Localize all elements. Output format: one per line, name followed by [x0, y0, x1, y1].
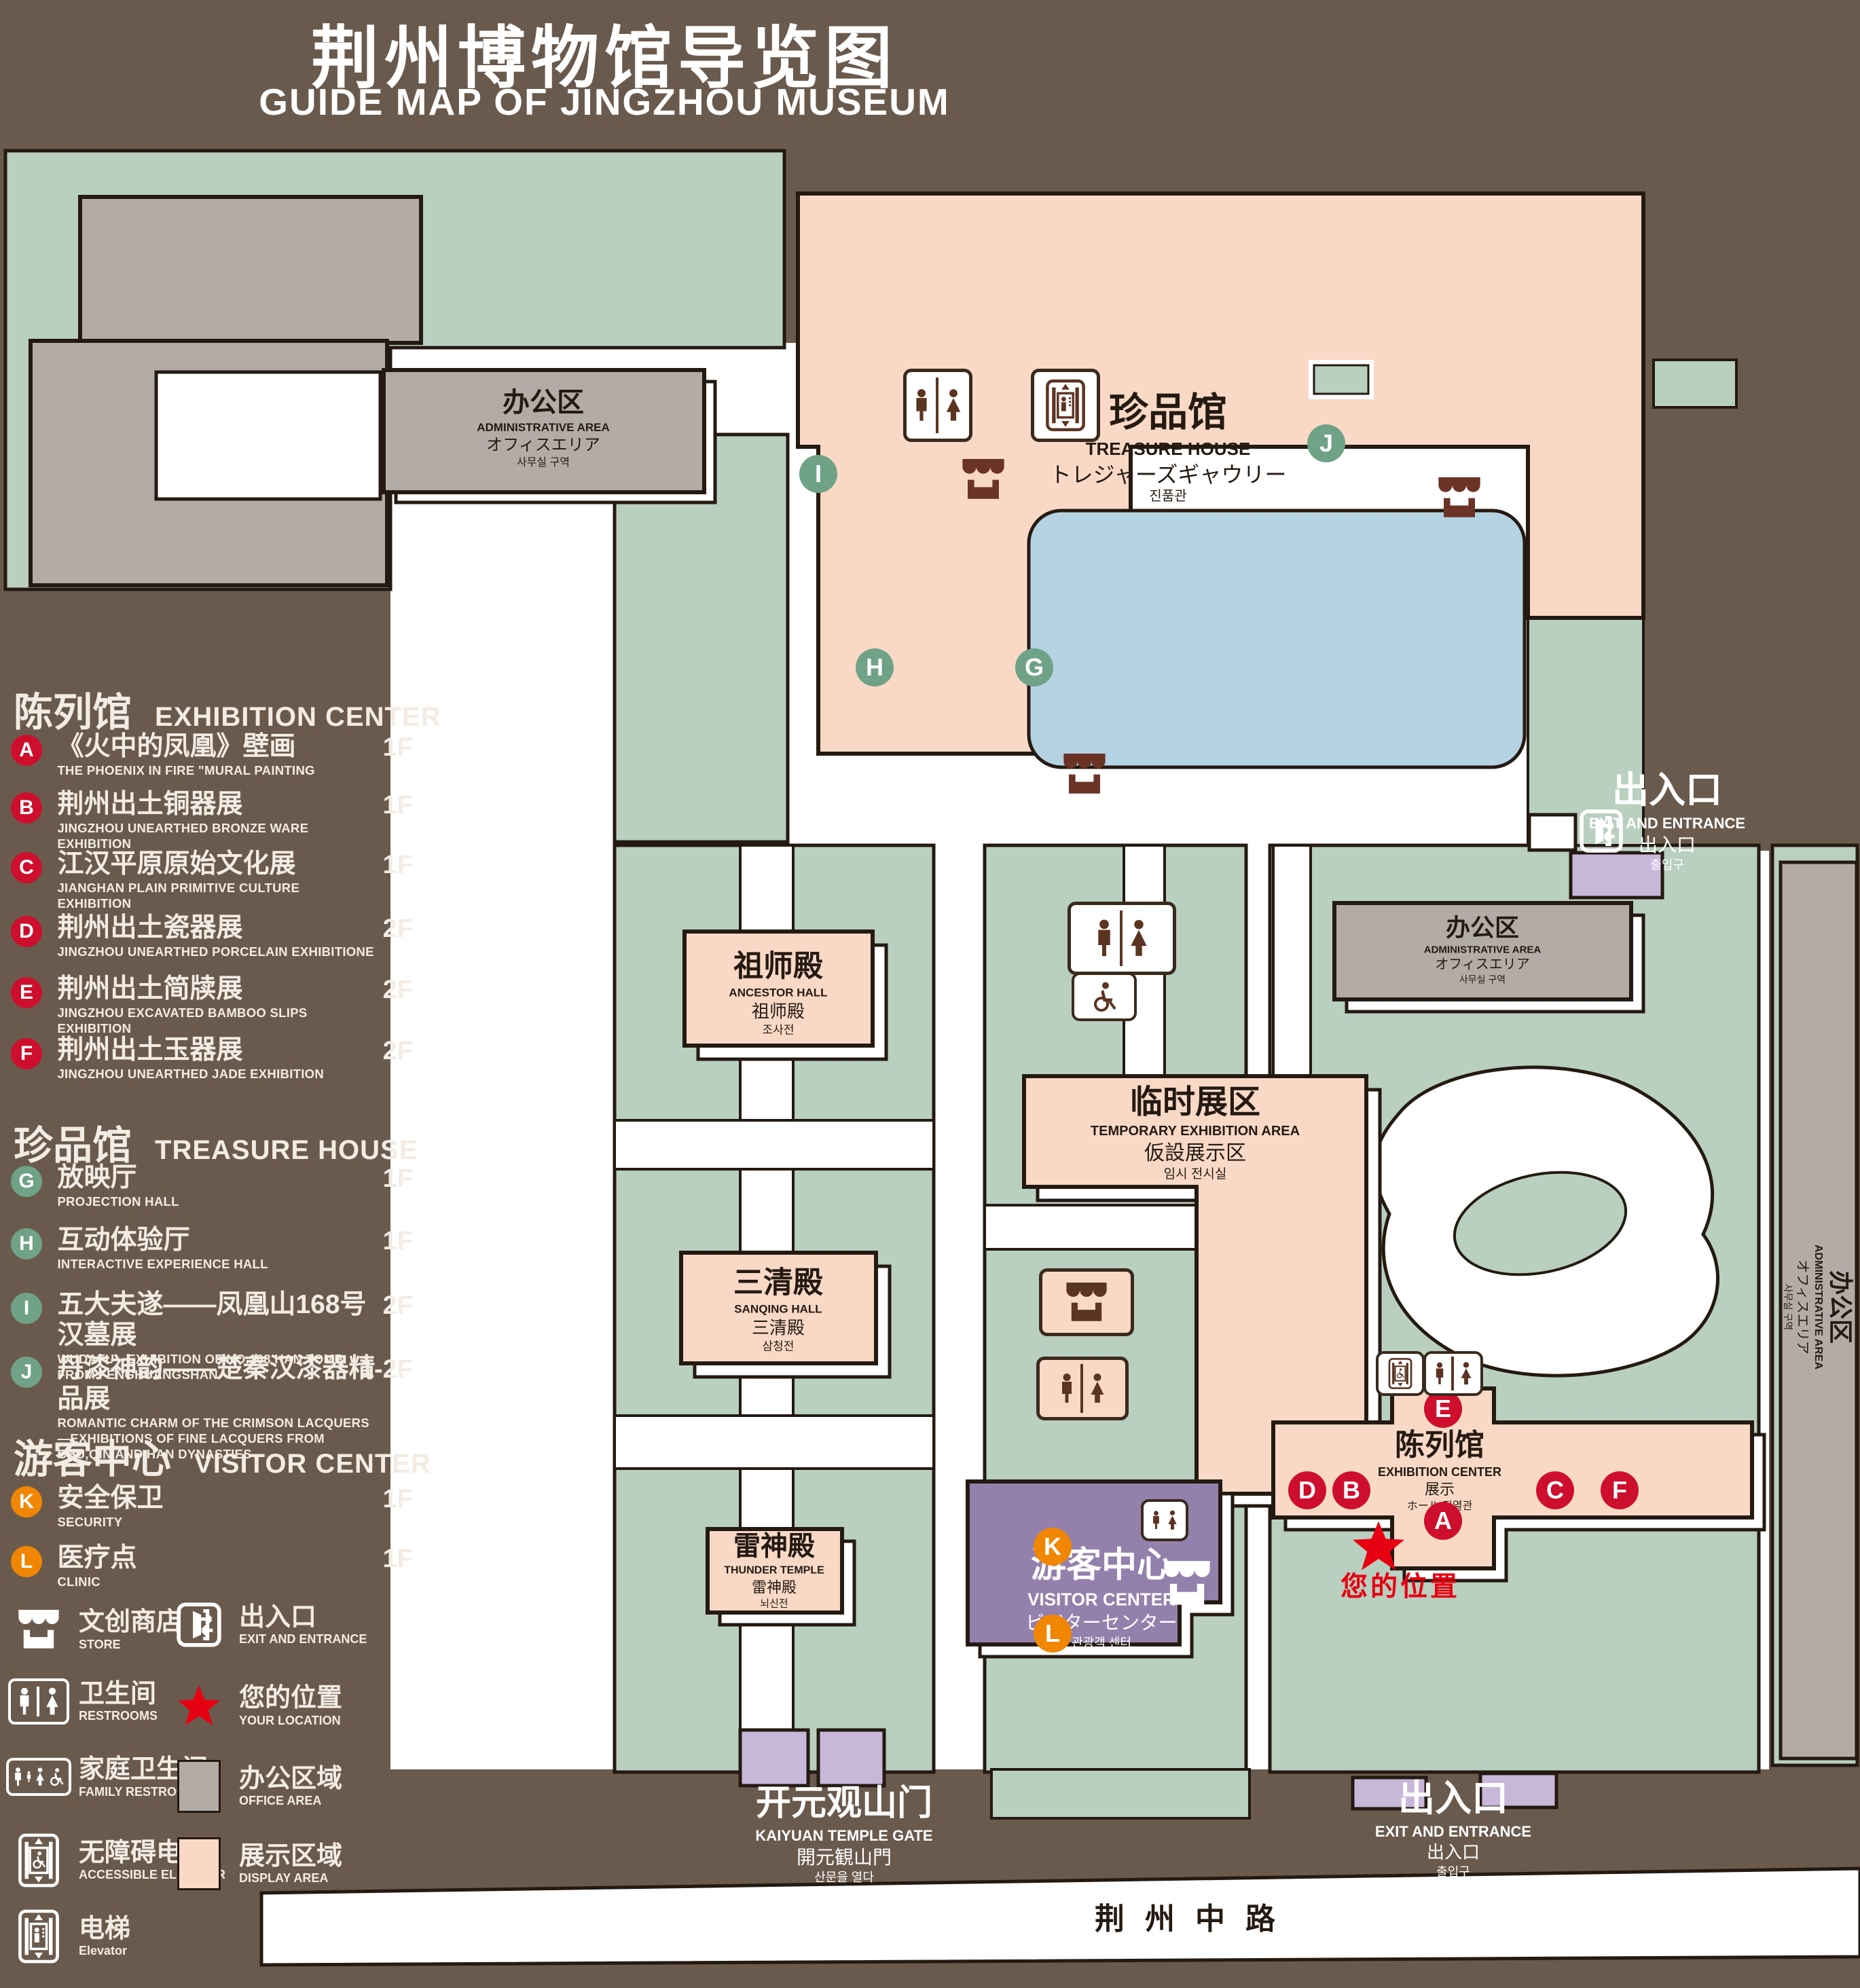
- map-marker-A: A: [1424, 1502, 1462, 1540]
- legend-symbol-office-area: 办公区域 OFFICE AREA: [170, 1760, 342, 1813]
- label-admin-nw: 办公区 ADMINISTRATIVE AREA オフィスエリア 사무실 구역: [477, 386, 610, 470]
- map-marker-C: C: [1536, 1471, 1574, 1509]
- legend-section-exhibition-center: 陈列馆 EXHIBITION CENTER: [14, 680, 441, 737]
- green-south-ext: [991, 1769, 1250, 1818]
- legend-item-D: D 荆州出土瓷器展 JINGZHOU UNEARTHED PORCELAIN E…: [11, 913, 432, 959]
- visitor-restroom-icon: [1141, 1499, 1188, 1541]
- map-marker-I: I: [799, 455, 837, 493]
- road-label: 荆州中路: [1095, 1894, 1296, 1938]
- your-location-label: 您的位置: [1341, 1564, 1460, 1604]
- treasure-restroom-icon: [903, 369, 972, 442]
- treasure-skylight: [1314, 365, 1368, 394]
- map-marker-J: J: [1307, 424, 1345, 462]
- exhibition-elevator-icon: [1376, 1351, 1425, 1396]
- badge-A: A: [11, 735, 42, 766]
- map-marker-F: F: [1601, 1471, 1639, 1509]
- legend-symbol-store: 文创商店 STORE: [10, 1608, 182, 1652]
- badge-D: D: [11, 916, 42, 947]
- map-marker-G: G: [1015, 648, 1053, 686]
- map-marker-B: B: [1332, 1471, 1370, 1509]
- store-icon: [10, 1610, 68, 1649]
- treasure-store-icon-3: [1063, 754, 1106, 794]
- badge-H: H: [11, 1228, 42, 1259]
- label-gate: 开元观山门 KAIYUAN TEMPLE GATE 開元観山門 산문을 열다: [755, 1781, 932, 1885]
- label-thunder-temple: 雷神殿 THUNDER TEMPLE 雷神殿 뇌신전: [724, 1530, 824, 1610]
- badge-G: G: [11, 1166, 42, 1197]
- label-admin-east: 办公区 ADMINISTRATIVE AREA オフィスエリア 사무실 구역: [1781, 1245, 1856, 1369]
- label-exhibition-center: 陈列馆 EXHIBITION CENTER 展示 ホール 진열관: [1378, 1426, 1501, 1513]
- legend-item-B: B 荆州出土铜器展 JINGZHOU UNEARTHED BRONZE WARE…: [11, 790, 432, 851]
- visitor-store-icon: [1163, 1561, 1211, 1606]
- badge-L: L: [11, 1546, 42, 1577]
- display-area-swatch: [170, 1837, 228, 1890]
- gate-block-right: [818, 1730, 884, 1786]
- badge-B: B: [11, 792, 42, 824]
- guide-map-poster: 荆州博物馆导览图 GUIDE MAP OF JINGZHOU MUSEUM 办公…: [0, 0, 1860, 1988]
- badge-C: C: [11, 852, 42, 883]
- pond: [1029, 511, 1525, 767]
- legend-item-F: F 荆州出土玉器展 JINGZHOU UNEARTHED JADE EXHIBI…: [11, 1035, 432, 1082]
- legend-item-K: K 安全保卫 SECURITY 1F: [11, 1484, 432, 1530]
- label-exit-s: 出入口 EXIT AND ENTRANCE 出入口 출입구: [1375, 1775, 1531, 1880]
- family-restroom-icon: [10, 1758, 68, 1796]
- treasure-store-icon-1: [962, 459, 1005, 500]
- your-location-star-icon: [1353, 1522, 1404, 1571]
- badge-F: F: [11, 1038, 42, 1069]
- badge-E: E: [11, 977, 42, 1008]
- your-location-icon: [170, 1685, 228, 1726]
- badge-K: K: [11, 1486, 42, 1517]
- legend-item-E: E 荆州出土简牍展 JINGZHOU EXCAVATED BAMBOO SLIP…: [11, 974, 432, 1036]
- legend-symbol-display-area: 展示区域 DISPLAY AREA: [170, 1837, 342, 1890]
- label-ancestor-hall: 祖师殿 ANCESTOR HALL 祖师殿 조사전: [729, 947, 827, 1037]
- restroom-icon: [10, 1678, 68, 1725]
- legend-item-A: A 《火中的凤凰》壁画 THE PHOENIX IN FIRE "MURAL P…: [11, 732, 432, 778]
- map-marker-H: H: [856, 648, 894, 686]
- badge-J: J: [11, 1357, 42, 1388]
- mid-restroom-icon: [1068, 902, 1176, 975]
- treasure-store-icon-2: [1438, 477, 1481, 518]
- gate-block-left: [740, 1730, 808, 1786]
- office-area-swatch: [170, 1760, 228, 1813]
- legend-item-G: G 放映厅 PROJECTION HALL 1F: [11, 1163, 432, 1209]
- mid-accessible-icon: [1072, 972, 1137, 1021]
- label-temporary: 临时展区 TEMPORARY EXHIBITION AREA 仮設展示区 임시 …: [1091, 1082, 1300, 1183]
- legend-item-C: C 江汉平原原始文化展 JIANGHAN PLAIN PRIMITIVE CUL…: [11, 849, 432, 911]
- map-marker-K: K: [1034, 1528, 1072, 1566]
- legend-symbol-elevator: 电梯 Elevator: [10, 1909, 130, 1964]
- legend-section-treasure-house: 珍品馆 TREASURE HOUSE: [14, 1113, 418, 1171]
- label-sanqing-hall: 三清殿 SANQING HALL 三清殿 삼청전: [733, 1264, 823, 1354]
- accessible-elevator-icon: [10, 1833, 68, 1888]
- treasure-elevator-icon: [1031, 369, 1100, 442]
- label-admin-mid: 办公区 ADMINISTRATIVE AREA オフィスエリア 사무실 구역: [1424, 913, 1542, 987]
- legend-symbol-location: 您的位置 YOUR LOCATION: [170, 1684, 342, 1728]
- legend-section-visitor-center: 游客中心 VISITOR CENTER: [14, 1427, 431, 1484]
- map-marker-L: L: [1034, 1615, 1072, 1653]
- path-left-h2: [615, 1416, 934, 1469]
- badge-I: I: [11, 1293, 42, 1324]
- path-left-h1: [615, 1120, 934, 1169]
- elevator-icon: [10, 1909, 68, 1964]
- legend-symbol-exit: 出入口 EXIT AND ENTRANCE: [170, 1602, 367, 1647]
- ne-exit-icon: [1580, 809, 1623, 853]
- mid-store-icon-box: [1039, 1268, 1134, 1336]
- legend-item-H: H 互动体验厅 INTERACTIVE EXPERIENCE HALL 1F: [11, 1226, 432, 1272]
- legend-panel: 陈列馆 EXHIBITION CENTER A 《火中的凤凰》壁画 THE PH…: [0, 0, 441, 1988]
- legend-symbol-restroom: 卫生间 RESTROOMS: [10, 1678, 158, 1725]
- legend-item-L: L 医疗点 CLINIC 1F: [11, 1543, 432, 1589]
- green-ne-small: [1654, 360, 1736, 407]
- mid-restroom-icon-box: [1036, 1357, 1129, 1420]
- exit-icon: [170, 1602, 228, 1647]
- exhibition-restroom-icon: [1423, 1351, 1483, 1396]
- map-marker-D: D: [1288, 1471, 1326, 1509]
- ne-exit-path: [1529, 815, 1575, 850]
